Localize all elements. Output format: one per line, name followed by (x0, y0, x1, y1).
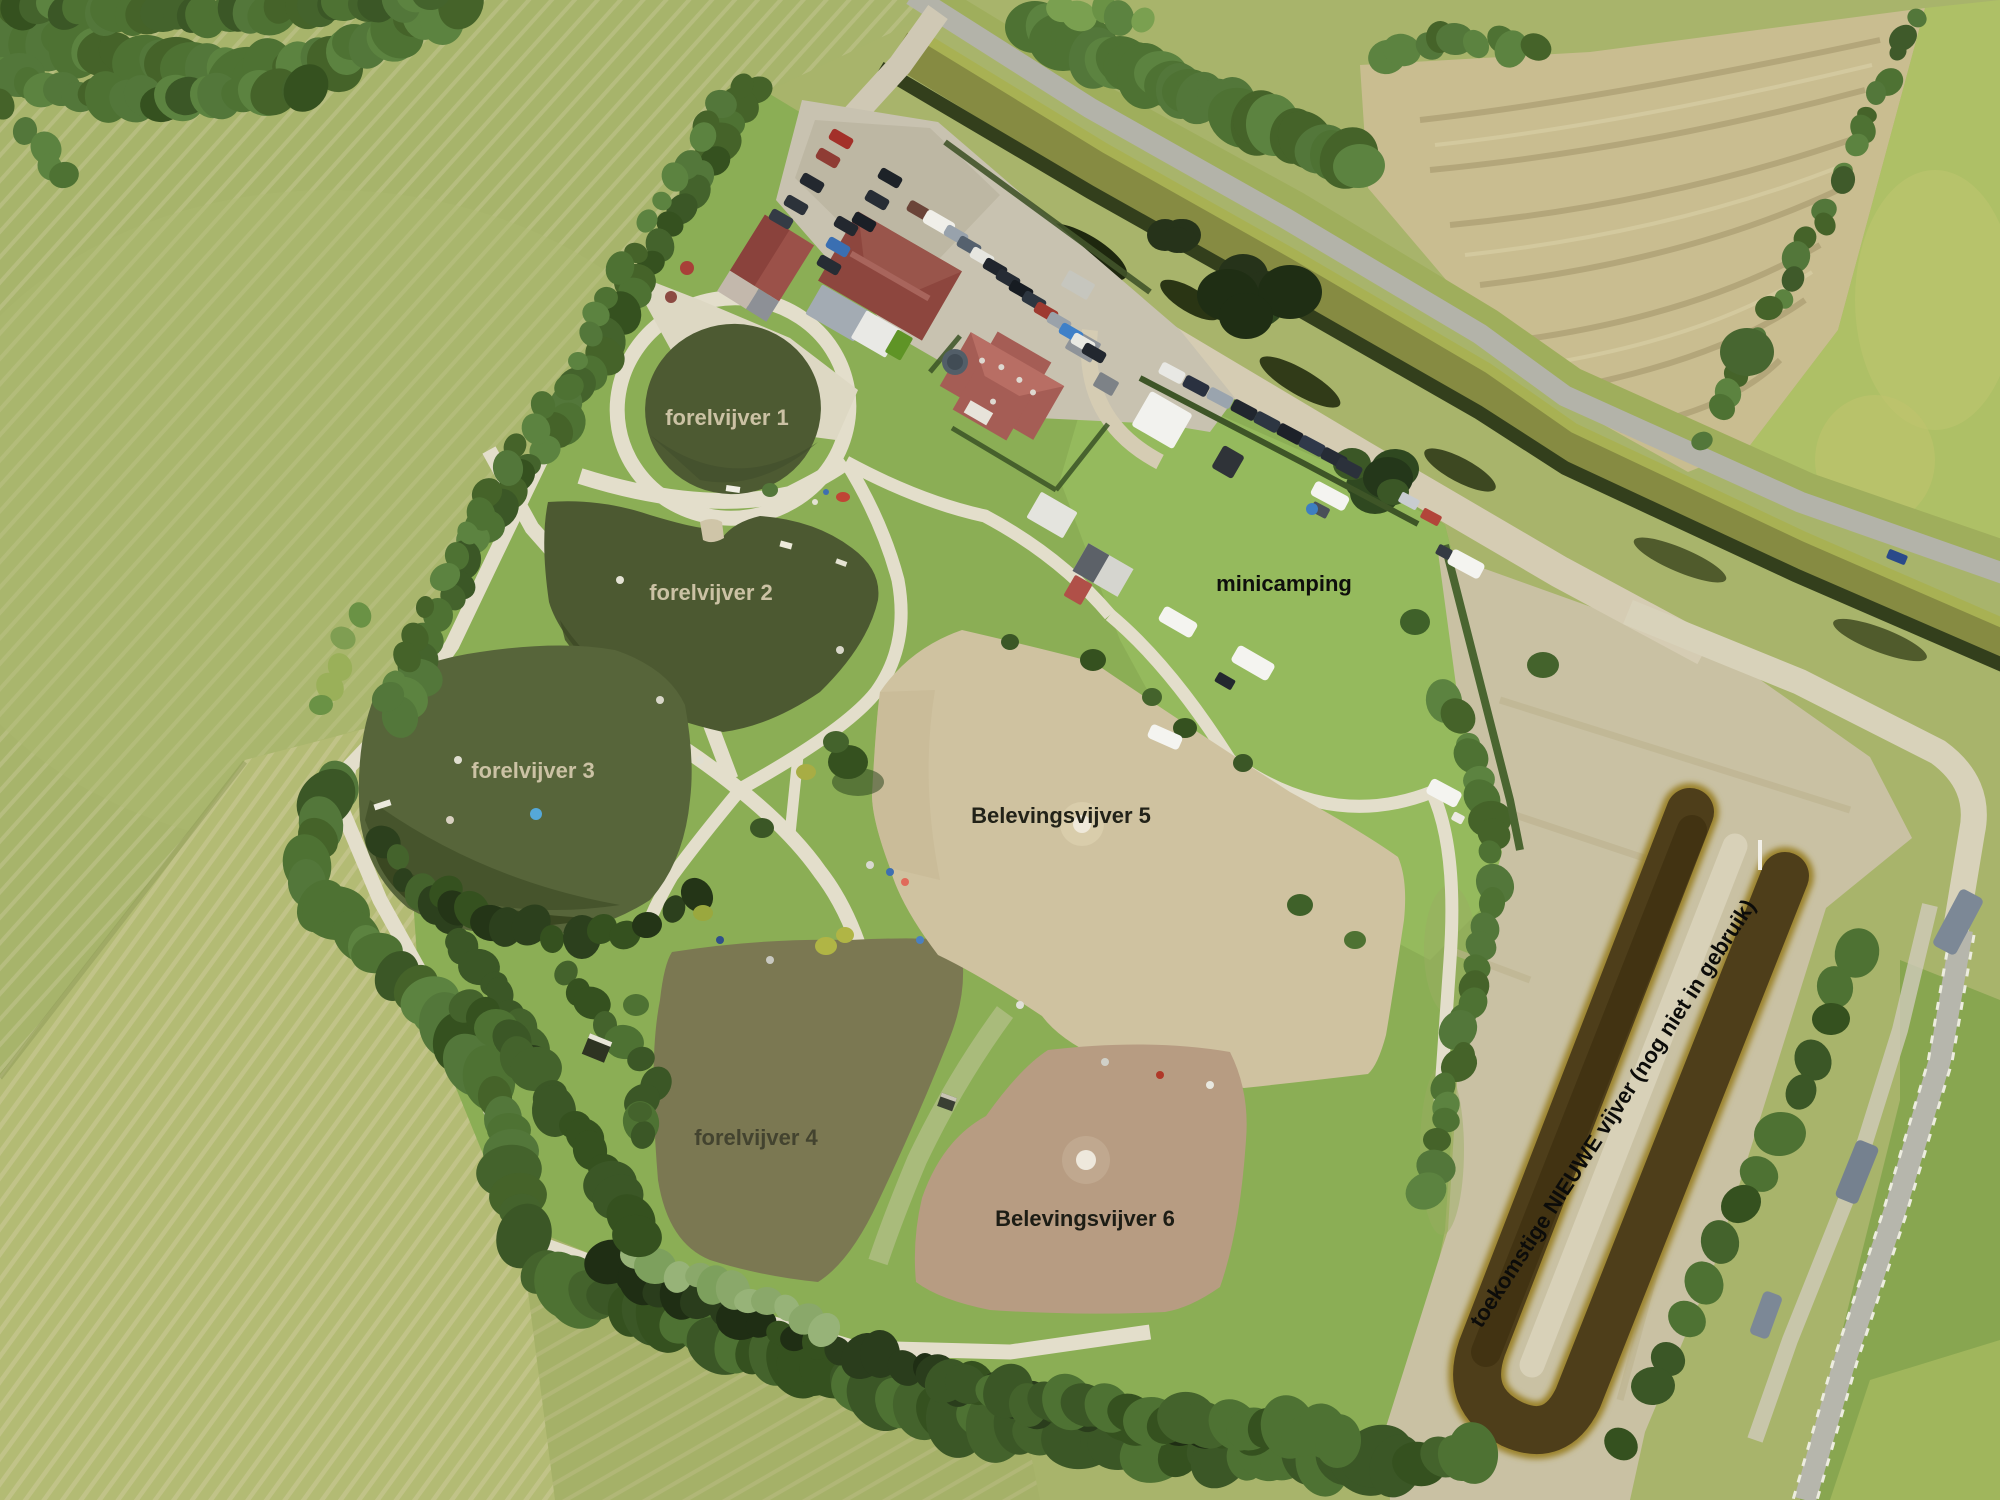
svg-text:Belevingsvijver 5: Belevingsvijver 5 (971, 803, 1151, 828)
svg-text:forelvijver 4: forelvijver 4 (694, 1125, 818, 1150)
svg-text:forelvijver 3: forelvijver 3 (471, 758, 595, 783)
svg-text:minicamping: minicamping (1216, 571, 1352, 596)
svg-text:forelvijver 2: forelvijver 2 (649, 580, 773, 605)
svg-text:forelvijver 1: forelvijver 1 (665, 405, 789, 430)
svg-text:Belevingsvijver 6: Belevingsvijver 6 (995, 1206, 1175, 1231)
